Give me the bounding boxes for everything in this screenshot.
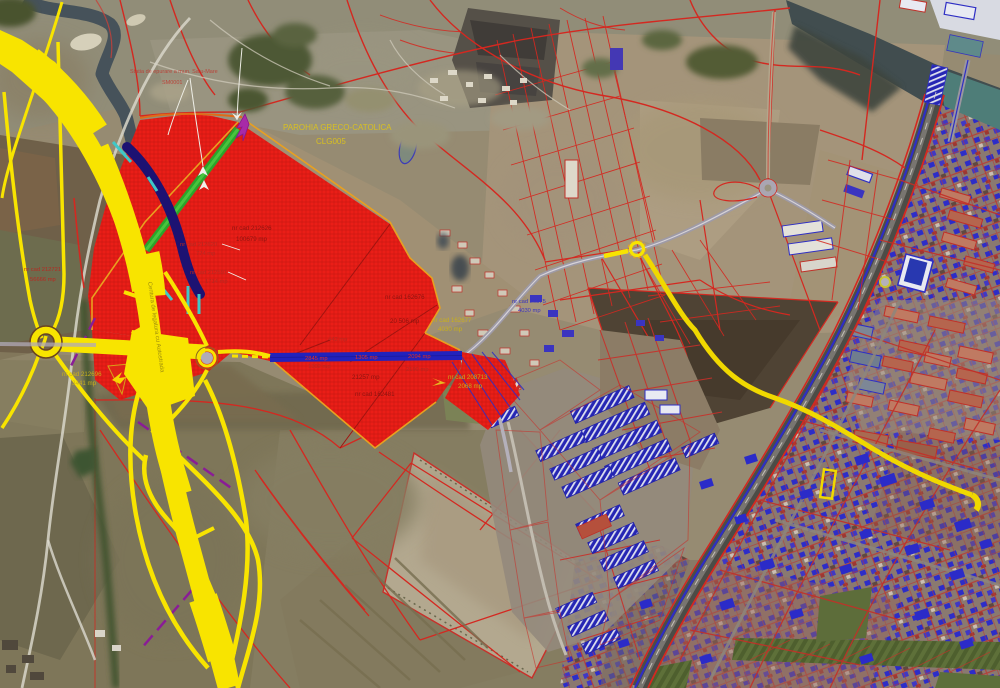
svg-text:100679 mp: 100679 mp	[236, 236, 268, 243]
svg-text:1305 mp: 1305 mp	[355, 355, 378, 361]
svg-text:3441 mp: 3441 mp	[72, 380, 97, 387]
svg-text:56666 mp: 56666 mp	[30, 277, 56, 283]
svg-text:2190 mp: 2190 mp	[406, 367, 429, 373]
svg-text:nr cad 212626: nr cad 212626	[232, 225, 272, 232]
svg-text:nr cad 39875: nr cad 39875	[512, 299, 546, 305]
svg-text:nr cad 162676: nr cad 162676	[385, 294, 425, 301]
svg-text:774 mp: 774 mp	[196, 251, 215, 257]
svg-text:2094 mp: 2094 mp	[408, 354, 431, 360]
svg-text:nr cad 208713: nr cad 208713	[448, 374, 488, 381]
svg-text:CLG005: CLG005	[316, 137, 346, 146]
svg-text:2845 mp: 2845 mp	[305, 356, 328, 362]
svg-text:2068 mp: 2068 mp	[458, 383, 483, 390]
svg-text:442 mp: 442 mp	[328, 337, 347, 343]
svg-text:PAROHIA GRECO-CATOLICA: PAROHIA GRECO-CATOLICA	[283, 123, 392, 132]
svg-text:nr cad 212696: nr cad 212696	[62, 371, 102, 378]
svg-text:nr cad 212591: nr cad 212591	[190, 270, 227, 276]
svg-text:21257 mp: 21257 mp	[352, 374, 380, 381]
svg-text:20 506 mp: 20 506 mp	[390, 318, 420, 325]
svg-text:nr cad 212721: nr cad 212721	[24, 267, 61, 273]
svg-text:nr cad 162481: nr cad 162481	[355, 391, 395, 398]
svg-text:4030 mp: 4030 mp	[438, 326, 463, 333]
svg-text:nr cad 162677: nr cad 162677	[432, 317, 472, 324]
svg-text:Statia de epurare a mun. Satu-: Statia de epurare a mun. Satu-Mare	[130, 69, 218, 75]
svg-text:SM0001: SM0001	[162, 80, 183, 86]
svg-text:1302 mp: 1302 mp	[308, 364, 331, 370]
svg-text:1714 mp: 1714 mp	[205, 279, 228, 285]
svg-text:4030 mp: 4030 mp	[518, 308, 541, 314]
svg-text:nr cad 212620: nr cad 212620	[180, 242, 217, 248]
